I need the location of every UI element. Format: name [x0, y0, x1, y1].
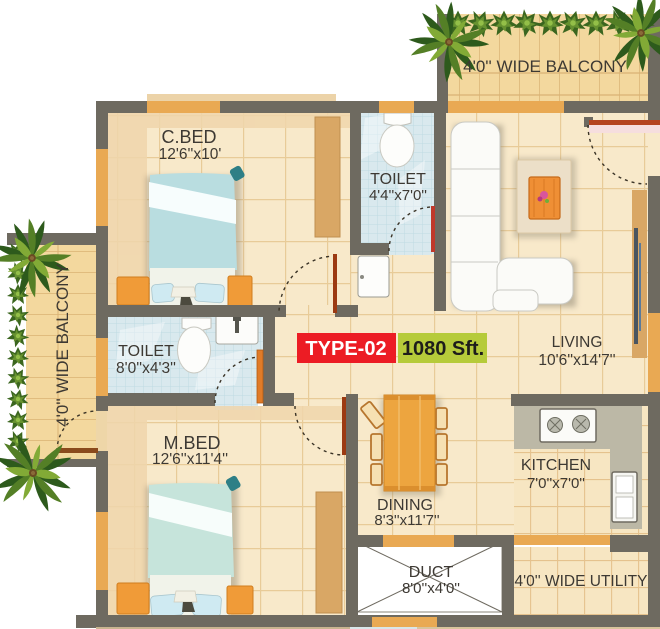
svg-text:12'6''x11'4'': 12'6''x11'4'': [152, 451, 228, 468]
svg-text:8'0''x4'0'': 8'0''x4'0'': [402, 580, 460, 597]
svg-text:1080 Sft.: 1080 Sft.: [402, 338, 484, 360]
svg-text:C.BED: C.BED: [161, 127, 216, 147]
svg-text:12'6''x10': 12'6''x10': [159, 146, 222, 163]
svg-text:TOILET: TOILET: [118, 343, 174, 360]
svg-text:TYPE-02: TYPE-02: [305, 338, 386, 360]
svg-text:7'0''x7'0'': 7'0''x7'0'': [527, 475, 585, 492]
svg-text:10'6''x14'7'': 10'6''x14'7'': [538, 352, 615, 369]
svg-text:8'0''x4'3'': 8'0''x4'3'': [116, 360, 176, 377]
svg-text:DUCT: DUCT: [409, 564, 454, 581]
svg-text:LIVING: LIVING: [552, 334, 603, 351]
svg-text:4'4''x7'0'': 4'4''x7'0'': [369, 187, 427, 204]
svg-text:M.BED: M.BED: [163, 433, 220, 453]
svg-text:TOILET: TOILET: [370, 171, 426, 188]
svg-text:4'0'' WIDE BALCONY: 4'0'' WIDE BALCONY: [463, 57, 627, 76]
svg-text:4'0'' WIDE BALCONY: 4'0'' WIDE BALCONY: [53, 263, 72, 427]
svg-text:4'0'' WIDE UTILITY: 4'0'' WIDE UTILITY: [515, 573, 648, 590]
svg-text:8'3''x11'7'': 8'3''x11'7'': [374, 512, 439, 529]
svg-text:KITCHEN: KITCHEN: [521, 457, 591, 474]
